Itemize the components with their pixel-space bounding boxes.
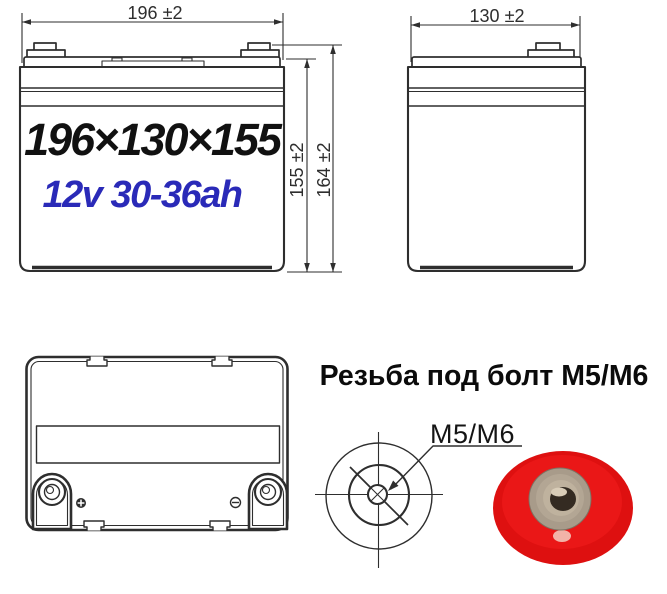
battery-rating-text: 12v 30-36ah	[12, 174, 272, 217]
bottom-view-drawing	[27, 357, 288, 531]
thread-heading: Резьба под болт М5/М6	[304, 360, 664, 393]
battery-size-text: 196×130×155	[20, 114, 284, 166]
bottom-terminal-right	[249, 474, 287, 529]
photo-highlight	[553, 530, 571, 542]
front-width-dim-label: 196 ±2	[95, 3, 215, 24]
positive-terminal-marker	[76, 498, 86, 508]
lid-height-dim-label: 155 ±2	[287, 125, 307, 215]
bottom-terminal-left	[33, 474, 71, 529]
top-notch-right	[212, 357, 232, 367]
terminal-photo	[493, 451, 633, 565]
label-strip	[37, 426, 280, 463]
thread-callout-label: M5/M6	[430, 419, 515, 450]
total-height-dim-label: 164 ±2	[314, 125, 334, 215]
negative-terminal-marker	[231, 498, 241, 508]
photo-nut	[529, 468, 591, 530]
thread-diagram	[315, 432, 522, 568]
bottom-notch-right	[210, 521, 230, 531]
side-view-drawing	[408, 43, 585, 271]
side-width-dim-label: 130 ±2	[437, 6, 557, 27]
line-art	[0, 0, 667, 594]
battery-spec-diagram: 196 ±2 130 ±2 155 ±2 164 ±2 196×130×155 …	[0, 0, 667, 594]
top-notch-left	[87, 357, 107, 367]
bottom-notch-left	[84, 521, 104, 531]
